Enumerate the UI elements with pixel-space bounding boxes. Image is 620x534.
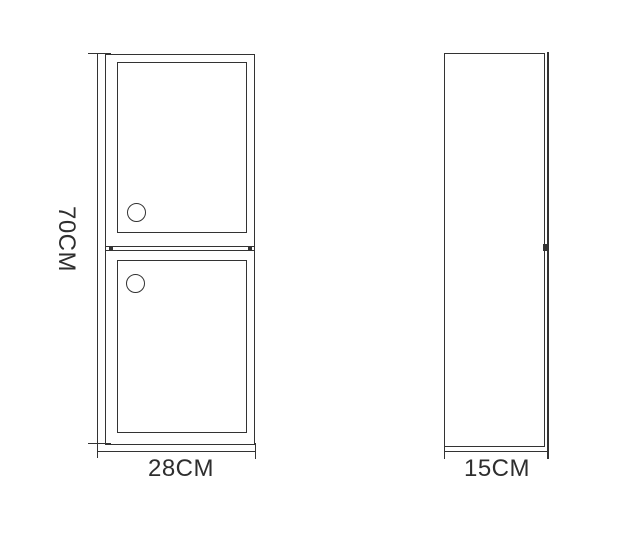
upper-door-knob-icon	[127, 203, 146, 222]
cabinet-dimension-drawing: 70CM 28CM 15CM	[0, 0, 620, 534]
height-dimension-line	[97, 53, 99, 458]
lower-door-knob-icon	[126, 274, 145, 293]
middle-divider	[105, 246, 255, 251]
depth-dimension-label: 15CM	[447, 456, 547, 482]
divider-end-left	[109, 246, 113, 250]
cabinet-side-outline	[444, 53, 545, 447]
height-dimension-label: 70CM	[53, 189, 79, 289]
width-dimension-label: 28CM	[131, 456, 231, 482]
depth-dimension-tick-left	[444, 446, 446, 459]
divider-end-right	[248, 246, 252, 250]
depth-dimension-tick-right	[547, 446, 549, 459]
side-hinge-mark	[543, 244, 548, 251]
width-dimension-line	[97, 451, 256, 453]
width-dimension-tick-right	[255, 443, 257, 459]
depth-dimension-line	[444, 451, 549, 453]
